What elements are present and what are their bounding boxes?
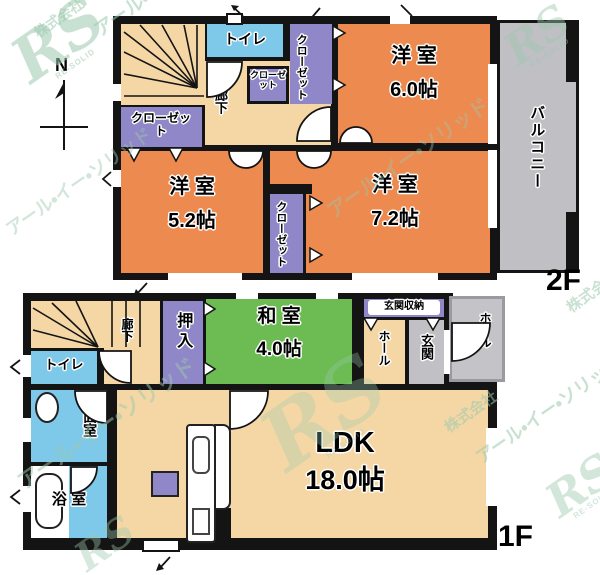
f1-window	[236, 293, 258, 299]
f2-room-sw-name: 洋 室	[121, 177, 263, 199]
f2-window	[113, 84, 121, 101]
f1-hall-inner-label: ホール	[377, 330, 390, 366]
f2-window	[352, 273, 438, 280]
watermark-company: 株式会社	[31, 0, 86, 41]
watermark-logo-text: RS	[0, 0, 118, 97]
f2-room-se-size: 7.2帖	[310, 209, 480, 231]
f1-hallway-label: 廊下	[120, 318, 133, 342]
f2-window	[168, 273, 242, 280]
watermark-logo-subtext: RE-SOLID	[34, 34, 117, 95]
f1-washitsu-name: 和 室	[206, 307, 352, 328]
f1-floor-label: 1F	[498, 520, 533, 554]
washbasin	[35, 392, 59, 423]
kitchen-counter-ext	[214, 424, 231, 510]
f1-window	[23, 355, 31, 377]
f2-balcony-window	[488, 150, 497, 228]
f2-toilet-label: トイレ	[207, 32, 283, 47]
f2-room-ne-size: 6.0帖	[338, 80, 490, 102]
f1-bathroom-label: 浴 室	[34, 492, 104, 508]
f2-room-sw-size: 5.2帖	[121, 211, 263, 233]
floorplan-canvas: トイレ 廊下 クローゼット クローゼット クローゼット クローゼット 洋 室 6…	[0, 0, 600, 575]
ldk-purple-counter	[151, 471, 179, 497]
f2-stairs-room	[121, 24, 205, 105]
ldk-size: 18.0帖	[240, 466, 450, 495]
f1-entry-opening	[444, 330, 450, 374]
ldk-name: LDK	[240, 428, 450, 459]
f1-stairs-room	[31, 301, 160, 348]
f1-window	[486, 428, 497, 506]
kitchen-stove	[192, 508, 210, 535]
f1-entrance-label: 玄関	[419, 334, 433, 360]
f1-washitsu-size: 4.0帖	[206, 340, 352, 361]
f2-floor-label: 2F	[546, 264, 581, 298]
f1-washroom-label: 洗面室	[82, 395, 97, 437]
compass-north-label: N	[55, 56, 68, 75]
f1-hall-entry-box	[449, 296, 505, 382]
f2-closet-east-label: クローゼット	[273, 201, 288, 245]
f1-toilet-label: トイレ	[31, 358, 97, 372]
f1-hallway-area	[104, 348, 160, 384]
watermark-rs-logo: RS RE-SOLID	[540, 449, 600, 528]
balcony-label: バルコニー	[528, 105, 544, 190]
watermark-logo-subtext: RE-SOLID	[562, 481, 600, 528]
watermark-text: 株式会社	[30, 0, 87, 42]
f1-entrance-storage-label: 玄関収納	[366, 302, 442, 313]
f2-closet-west-label: クローゼット	[131, 112, 191, 138]
f2-balcony-window	[488, 64, 497, 144]
watermark-logo-text: RS	[535, 442, 600, 527]
f1-window	[23, 418, 31, 442]
f2-closet-north-label: クローゼット	[294, 34, 308, 76]
f2-room-ne-name: 洋 室	[338, 46, 490, 68]
f2-hallway-label: 廊下	[213, 88, 227, 114]
f2-window	[390, 16, 410, 24]
compass-arrow	[40, 80, 88, 150]
f2-window	[113, 170, 121, 187]
f1-window	[23, 486, 31, 512]
f1-oshiire-label: 押入	[174, 312, 191, 352]
f1-hall-entry-label: ホール	[478, 312, 491, 348]
watermark-rs-logo: RS RE-SOLID	[4, 0, 117, 95]
balcony-wall-segment	[566, 20, 579, 82]
f2-door-top	[226, 13, 243, 25]
f1-window	[316, 293, 338, 299]
kitchen-sink	[192, 436, 210, 474]
f2-room-se-name: 洋 室	[310, 175, 480, 197]
f1-ldk-room	[117, 390, 488, 538]
kitchen-wall-stub	[216, 508, 231, 549]
f2-closet-small-label: クローゼット	[249, 71, 287, 90]
f2-closet-east-wall	[266, 184, 312, 194]
f1-back-door	[142, 539, 180, 552]
